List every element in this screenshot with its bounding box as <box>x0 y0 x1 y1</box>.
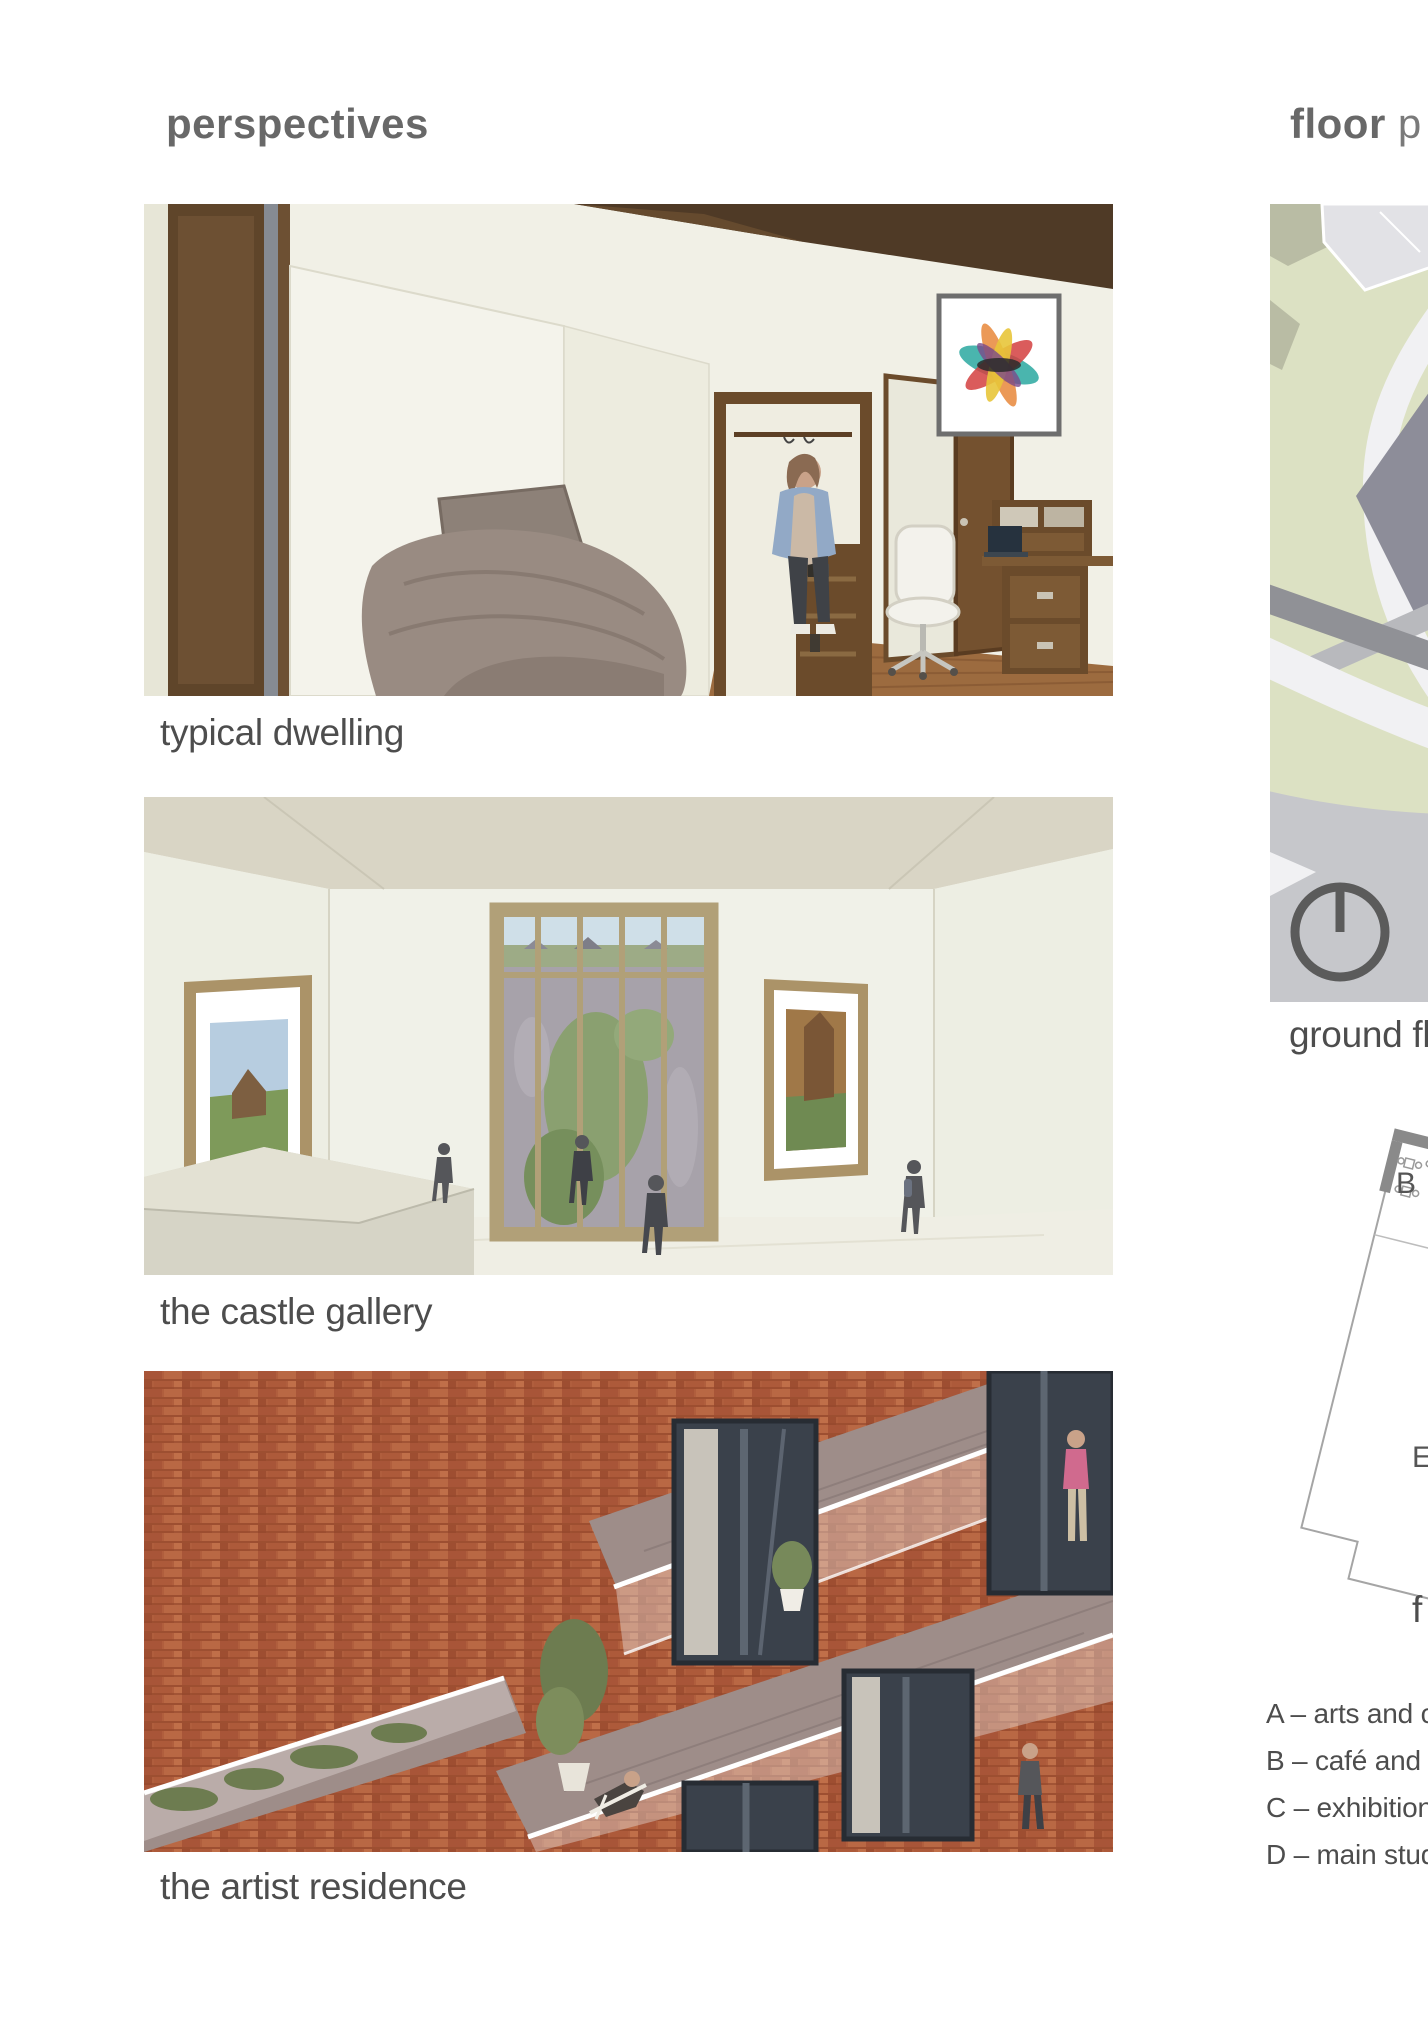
upper-floor-plan: B E <box>1300 1125 1428 1640</box>
ground-floor-site-plan-figure <box>1270 204 1428 1002</box>
stone-ceiling <box>144 797 1113 889</box>
plan-partition <box>1374 1235 1428 1270</box>
landscape-painting-right <box>764 979 868 1181</box>
plaza <box>1270 789 1428 1002</box>
upper-floor-caption: f <box>1412 1589 1422 1631</box>
ground-floor-caption: ground fl <box>1289 1014 1428 1056</box>
gray-wall-strip <box>264 204 278 696</box>
presentation-board-page: { "left_column": { "heading": "perspecti… <box>0 0 1428 2018</box>
artist-residence-caption: the artist residence <box>160 1866 467 1908</box>
legend-item-a: A – arts and cr <box>1266 1690 1428 1737</box>
typical-dwelling-render <box>144 204 1113 696</box>
castle-gallery-caption: the castle gallery <box>160 1291 432 1333</box>
window-3 <box>844 1671 972 1839</box>
side-wall-strip <box>144 204 168 696</box>
typical-dwelling-caption: typical dwelling <box>160 712 404 754</box>
wood-trim <box>278 204 290 696</box>
ground-floor-site-plan <box>1270 204 1428 1002</box>
perspectives-heading: perspectives <box>166 100 429 148</box>
typical-dwelling-figure <box>144 204 1113 696</box>
floor-plans-heading: floorp <box>1290 100 1422 148</box>
wardrobe-door <box>178 216 254 684</box>
plan-outline <box>1300 1138 1428 1600</box>
floor-plans-heading-bold: floor <box>1290 100 1386 147</box>
abstract-painting <box>939 296 1059 434</box>
artist-residence-render <box>144 1371 1113 1852</box>
plan-legend: A – arts and cr B – café and re C – exhi… <box>1266 1690 1428 1878</box>
legend-item-c: C – exhibition s <box>1266 1784 1428 1831</box>
castle-gallery-figure <box>144 797 1113 1275</box>
castle-gallery-render <box>144 797 1113 1275</box>
upper-floor-plan-figure: B E <box>1300 1125 1428 1640</box>
plan-label-e: E <box>1412 1441 1428 1474</box>
artist-residence-figure <box>144 1371 1113 1852</box>
window-2 <box>989 1371 1113 1593</box>
gallery-window <box>494 907 714 1237</box>
legend-item-d: D – main studi <box>1266 1831 1428 1878</box>
window-4 <box>684 1783 816 1852</box>
plan-label-b: B <box>1396 1167 1416 1200</box>
laptop <box>984 526 1028 557</box>
floor-plans-heading-rest: p <box>1398 100 1422 147</box>
legend-item-b: B – café and re <box>1266 1737 1428 1784</box>
